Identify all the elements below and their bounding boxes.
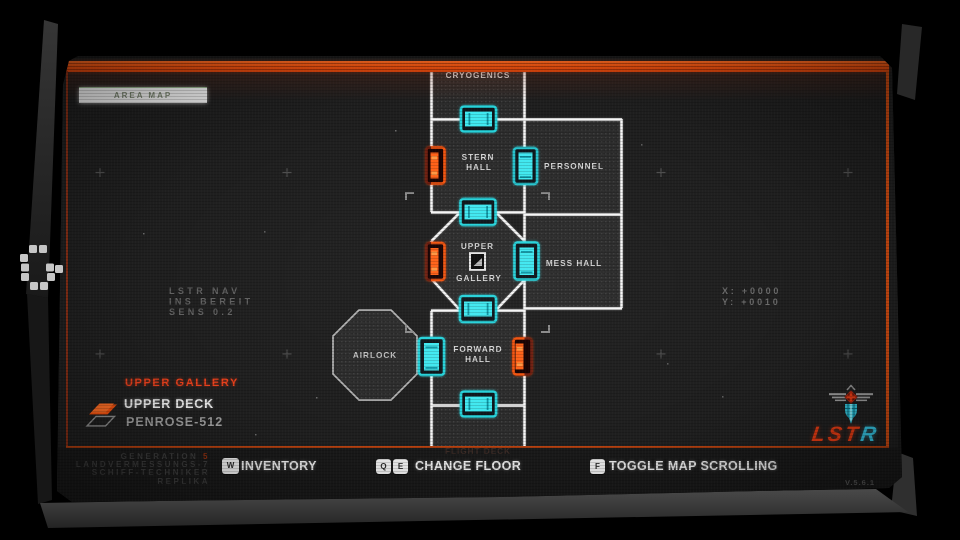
svg-text:UPPER: UPPER [461,242,494,251]
svg-text:HALL: HALL [465,355,491,364]
svg-text:AIRLOCK: AIRLOCK [353,351,397,360]
svg-text:INS BEREIT: INS BEREIT [169,297,254,307]
svg-text:MESS HALL: MESS HALL [546,259,602,268]
svg-text:GALLERY: GALLERY [456,274,502,283]
svg-text:Y: +0010: Y: +0010 [722,297,781,307]
svg-text:FORWARD: FORWARD [453,345,502,354]
svg-text:SENS 0.2: SENS 0.2 [169,307,236,317]
svg-text:STERN: STERN [462,153,495,162]
svg-text:LSTR NAV: LSTR NAV [169,286,241,296]
svg-text:HALL: HALL [466,163,492,172]
svg-text:X: +0000: X: +0000 [722,286,781,296]
svg-text:PERSONNEL: PERSONNEL [544,162,604,171]
